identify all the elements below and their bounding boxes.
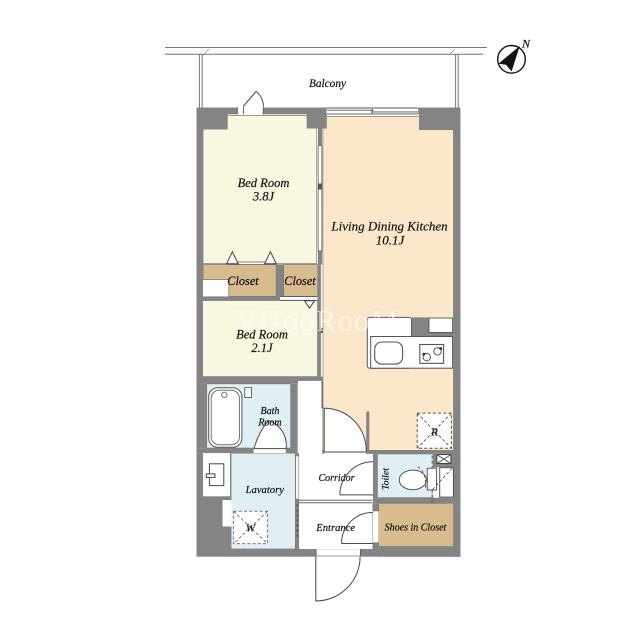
svg-text:Toilet: Toilet [381,468,392,490]
svg-text:Bed Room: Bed Room [238,176,290,190]
svg-text:Closet: Closet [227,274,259,288]
svg-text:W: W [246,523,256,535]
svg-text:Living Dining Kitchen: Living Dining Kitchen [330,219,447,234]
svg-text:R: R [430,427,438,439]
svg-text:Shoes in Closet: Shoes in Closet [385,523,447,534]
svg-text:N: N [521,37,531,51]
svg-text:Closet: Closet [284,274,316,288]
svg-text:3.8J: 3.8J [252,190,276,204]
svg-text:Corridor: Corridor [318,473,354,484]
svg-text:Lavatory: Lavatory [245,485,285,496]
svg-text:2.1J: 2.1J [251,341,274,355]
svg-text:Room: Room [257,417,281,428]
svg-text:Entrance: Entrance [315,523,355,534]
svg-text:VGooRooM: VGooRooM [236,303,399,338]
svg-text:10.1J: 10.1J [376,233,406,248]
svg-text:Balcony: Balcony [309,78,347,90]
svg-text:Bath: Bath [261,406,280,417]
